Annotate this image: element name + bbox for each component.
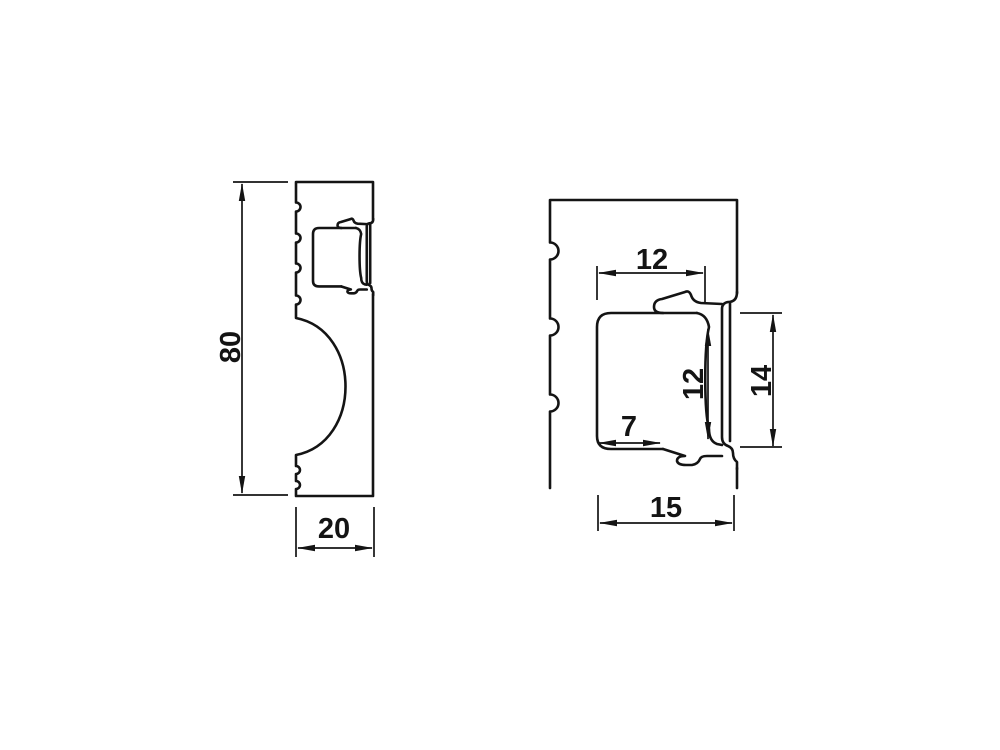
- arrow-up-icon: [705, 328, 711, 346]
- arrow-right-icon: [355, 545, 373, 551]
- dim-label-inner-height: 12: [678, 368, 710, 400]
- arrow-up-icon: [239, 183, 245, 201]
- dim-label-height: 80: [215, 331, 247, 363]
- arrow-right-icon: [715, 520, 733, 526]
- technical-drawing-page: 80 20 12 7 12 14: [0, 0, 1000, 750]
- arrow-left-icon: [599, 520, 617, 526]
- arrow-right-icon: [686, 270, 704, 276]
- arrow-right-icon: [643, 440, 661, 446]
- arrow-left-icon: [297, 545, 315, 551]
- profile-channel-detail-small: [313, 219, 373, 295]
- dim-label-overall-width: 15: [650, 492, 682, 524]
- dim-label-width: 20: [318, 513, 350, 545]
- arrow-down-icon: [239, 476, 245, 494]
- arrow-down-icon: [770, 429, 776, 447]
- arrow-up-icon: [770, 314, 776, 332]
- profile-cross-section-drawing: 80 20 12 7 12 14: [0, 0, 1000, 750]
- arrow-left-icon: [598, 270, 616, 276]
- dim-label-top-width: 12: [636, 244, 668, 276]
- profile-full-view: [296, 182, 373, 496]
- dim-label-bottom-width: 7: [621, 411, 637, 443]
- dim-label-overall-height: 14: [746, 365, 778, 397]
